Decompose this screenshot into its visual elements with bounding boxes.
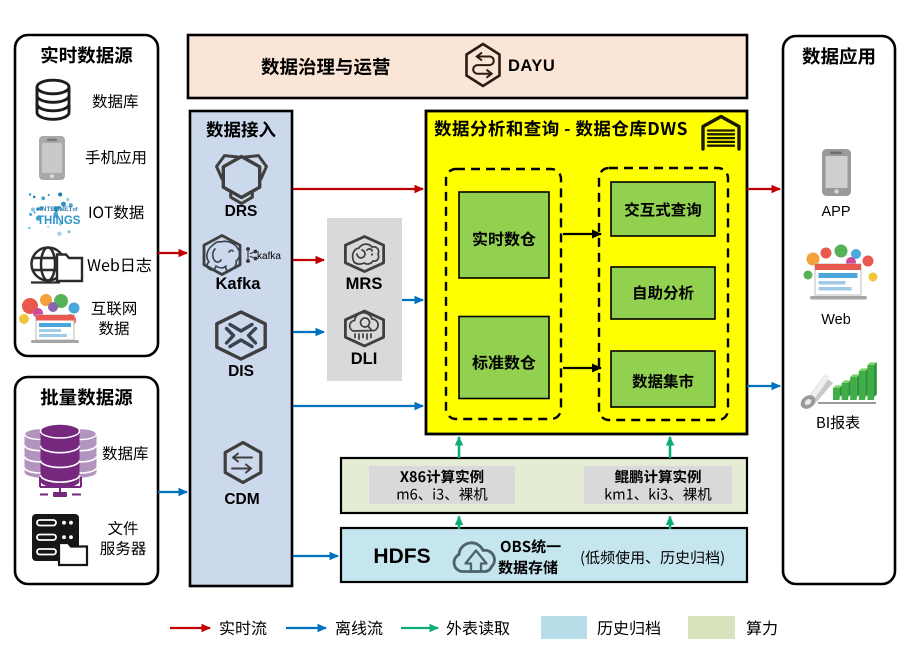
svg-text:DAYU: DAYU	[508, 57, 555, 75]
svg-text:■INTERNETof: ■INTERNETof	[36, 206, 78, 213]
svg-text:DLI: DLI	[351, 350, 378, 368]
svg-text:kafka: kafka	[257, 251, 281, 262]
svg-text:DIS: DIS	[228, 363, 254, 380]
svg-text:Web: Web	[821, 312, 851, 328]
svg-text:THINGS: THINGS	[37, 215, 81, 227]
svg-text:DRS: DRS	[225, 203, 258, 220]
svg-text:APP: APP	[821, 204, 850, 220]
svg-text:HDFS: HDFS	[373, 545, 430, 568]
svg-text:Kafka: Kafka	[216, 275, 262, 293]
svg-text:MRS: MRS	[346, 275, 383, 293]
svg-text:CDM: CDM	[224, 491, 259, 508]
